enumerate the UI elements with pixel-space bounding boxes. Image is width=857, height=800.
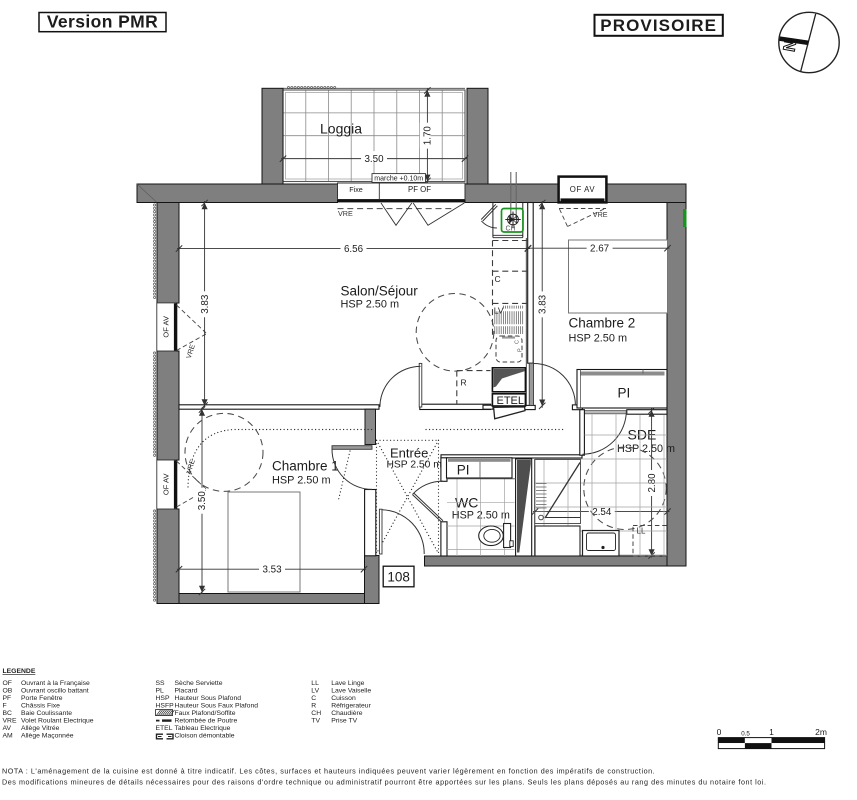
svg-text:ETEL: ETEL	[156, 725, 173, 732]
svg-text:3.83: 3.83	[200, 294, 211, 314]
svg-text:Réfrigerateur: Réfrigerateur	[331, 703, 371, 710]
svg-text:HSP 2.50 m: HSP 2.50 m	[387, 459, 442, 470]
svg-text:Tableau Electrique: Tableau Electrique	[175, 725, 231, 732]
svg-text:marche +0.10m: marche +0.10m	[374, 176, 423, 183]
svg-text:Allège Maçonnée: Allège Maçonnée	[21, 733, 74, 740]
svg-text:Hauteur Sous Plafond: Hauteur Sous Plafond	[175, 695, 242, 702]
svg-text:R: R	[461, 378, 467, 388]
svg-text:C: C	[495, 274, 501, 284]
svg-text:ETEL: ETEL	[497, 395, 525, 407]
svg-text:LEGENDE: LEGENDE	[3, 668, 36, 675]
svg-text:Fixe: Fixe	[349, 185, 363, 194]
svg-text:Baie Coulissante: Baie Coulissante	[21, 710, 72, 717]
svg-text:AV: AV	[3, 725, 12, 732]
svg-text:C: C	[515, 340, 521, 344]
svg-text:OF AV: OF AV	[570, 185, 596, 194]
svg-text:Lave Vaiselle: Lave Vaiselle	[331, 688, 371, 695]
svg-text:LL: LL	[637, 526, 646, 535]
svg-text:LV: LV	[311, 688, 319, 695]
svg-text:HSP 2.50 m: HSP 2.50 m	[617, 443, 675, 455]
svg-text:2m: 2m	[815, 727, 827, 737]
svg-text:OF AV: OF AV	[162, 474, 171, 496]
svg-text:LL: LL	[311, 680, 319, 687]
svg-text:CH: CH	[311, 710, 321, 717]
svg-text:OF: OF	[3, 680, 12, 687]
svg-text:Salon/Séjour: Salon/Séjour	[341, 284, 419, 299]
svg-text:Ouvrant à la Française: Ouvrant à la Française	[21, 680, 90, 687]
svg-text:PROVISOIRE: PROVISOIRE	[600, 16, 717, 35]
svg-text:CH: CH	[506, 226, 516, 233]
svg-text:108: 108	[387, 570, 410, 585]
svg-text:3.53: 3.53	[262, 564, 282, 575]
svg-text:Version PMR: Version PMR	[47, 11, 158, 31]
svg-text:PL: PL	[156, 688, 165, 695]
svg-text:2.54: 2.54	[592, 507, 612, 518]
svg-text:Loggia: Loggia	[320, 121, 362, 137]
svg-text:PI: PI	[457, 463, 470, 478]
svg-text:Cuisson: Cuisson	[331, 695, 356, 702]
svg-text:Sèche Serviette: Sèche Serviette	[175, 680, 223, 687]
svg-text:R: R	[311, 703, 316, 710]
svg-text:C: C	[311, 695, 316, 702]
svg-text:6.56: 6.56	[344, 244, 364, 255]
svg-text:OF AV: OF AV	[162, 316, 171, 338]
svg-text:AM: AM	[3, 733, 14, 740]
svg-text:Chaudière: Chaudière	[331, 710, 363, 717]
svg-text:1.70: 1.70	[423, 126, 434, 146]
svg-text:LV: LV	[494, 306, 504, 316]
svg-text:Faux Plafond/Soffite: Faux Plafond/Soffite	[175, 710, 236, 717]
svg-text:Placard: Placard	[175, 688, 198, 695]
svg-text:NOTA : L'aménagement de la cui: NOTA : L'aménagement de la cuisine est d…	[2, 767, 655, 776]
svg-text:1: 1	[769, 727, 774, 737]
svg-text:OB: OB	[3, 688, 13, 695]
svg-text:PI: PI	[618, 386, 631, 401]
svg-text:F: F	[3, 703, 7, 710]
svg-text:HSP 2.50 m: HSP 2.50 m	[341, 299, 400, 311]
svg-text:3.50: 3.50	[364, 154, 384, 165]
svg-text:Prise TV: Prise TV	[331, 718, 357, 725]
svg-text:HSP 2.50 m: HSP 2.50 m	[272, 474, 331, 486]
svg-text:VRE: VRE	[338, 209, 353, 218]
svg-text:P: P	[518, 348, 524, 352]
svg-text:VRE: VRE	[593, 210, 608, 219]
svg-text:TV: TV	[311, 718, 320, 725]
svg-text:Chambre 1: Chambre 1	[272, 459, 339, 474]
svg-text:Chambre 2: Chambre 2	[569, 316, 636, 331]
svg-text:Hauteur Sous Faux Plafond: Hauteur Sous Faux Plafond	[175, 703, 259, 710]
svg-text:PF: PF	[3, 695, 12, 702]
svg-text:Porte Fenêtre: Porte Fenêtre	[21, 695, 63, 702]
svg-text:HSP: HSP	[156, 695, 170, 702]
svg-text:2.67: 2.67	[590, 243, 609, 254]
svg-text:HSFP: HSFP	[156, 703, 175, 710]
svg-text:Lave Linge: Lave Linge	[331, 680, 364, 687]
svg-text:SS: SS	[156, 680, 166, 687]
svg-text:HSP 2.50 m: HSP 2.50 m	[569, 332, 628, 344]
svg-text:PF OF: PF OF	[408, 185, 431, 194]
svg-text:0: 0	[717, 727, 722, 737]
svg-text:Retombée de Poutre: Retombée de Poutre	[175, 718, 238, 725]
svg-text:Ouvrant oscillo battant: Ouvrant oscillo battant	[21, 688, 89, 695]
svg-text:Des modifications mineures de: Des modifications mineures de détails né…	[2, 778, 767, 787]
svg-text:Châssis Fixe: Châssis Fixe	[21, 703, 60, 710]
svg-text:Cloison démontable: Cloison démontable	[175, 733, 235, 740]
svg-text:3.50: 3.50	[197, 491, 208, 511]
svg-text:VRE: VRE	[3, 718, 17, 725]
svg-text:0.5: 0.5	[741, 731, 750, 738]
svg-text:BC: BC	[3, 710, 13, 717]
svg-text:Allège Vitrée: Allège Vitrée	[21, 725, 60, 732]
svg-text:3.83: 3.83	[537, 294, 548, 314]
svg-text:Volet Roulant Electrique: Volet Roulant Electrique	[21, 718, 94, 725]
